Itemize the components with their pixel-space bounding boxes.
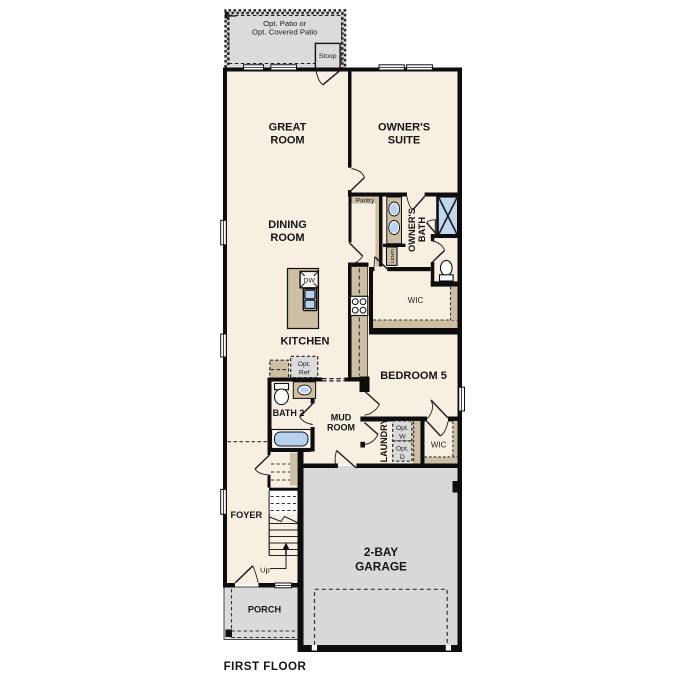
svg-text:Opt. Covered Patio: Opt. Covered Patio — [252, 27, 317, 36]
svg-text:BATH 2: BATH 2 — [273, 408, 305, 418]
svg-text:KITCHEN: KITCHEN — [281, 336, 330, 348]
svg-text:OWNER'S: OWNER'S — [407, 208, 417, 252]
svg-text:Ref: Ref — [299, 370, 310, 377]
svg-text:ROOM: ROOM — [270, 232, 304, 244]
svg-text:D: D — [400, 454, 405, 461]
svg-text:SUITE: SUITE — [388, 135, 420, 147]
svg-text:FOYER: FOYER — [230, 510, 262, 520]
svg-text:Linen: Linen — [390, 249, 396, 263]
svg-text:Opt.: Opt. — [396, 446, 409, 453]
svg-text:Stoop: Stoop — [319, 53, 337, 60]
svg-text:PORCH: PORCH — [248, 605, 282, 615]
svg-text:2-BAY: 2-BAY — [364, 545, 398, 559]
svg-text:WIC: WIC — [408, 296, 424, 305]
svg-text:FIRST FLOOR: FIRST FLOOR — [224, 660, 307, 673]
svg-text:BEDROOM 5: BEDROOM 5 — [380, 370, 447, 382]
svg-text:DINING: DINING — [268, 219, 307, 231]
svg-text:BATH: BATH — [417, 217, 427, 242]
svg-text:W: W — [399, 434, 406, 441]
svg-text:MUD: MUD — [331, 412, 352, 422]
svg-text:Opt.: Opt. — [298, 361, 311, 368]
svg-text:DW: DW — [304, 277, 316, 284]
svg-text:ROOM: ROOM — [327, 422, 355, 432]
svg-text:GREAT: GREAT — [269, 122, 307, 134]
svg-text:LAUNDRY: LAUNDRY — [379, 419, 389, 463]
svg-text:OWNER'S: OWNER'S — [378, 122, 430, 134]
svg-text:Opt.: Opt. — [396, 425, 409, 432]
svg-text:WIC: WIC — [431, 441, 447, 450]
svg-text:ROOM: ROOM — [270, 135, 304, 147]
svg-text:GARAGE: GARAGE — [355, 560, 407, 574]
svg-text:Pantry: Pantry — [356, 198, 375, 205]
svg-text:Up: Up — [260, 566, 270, 575]
